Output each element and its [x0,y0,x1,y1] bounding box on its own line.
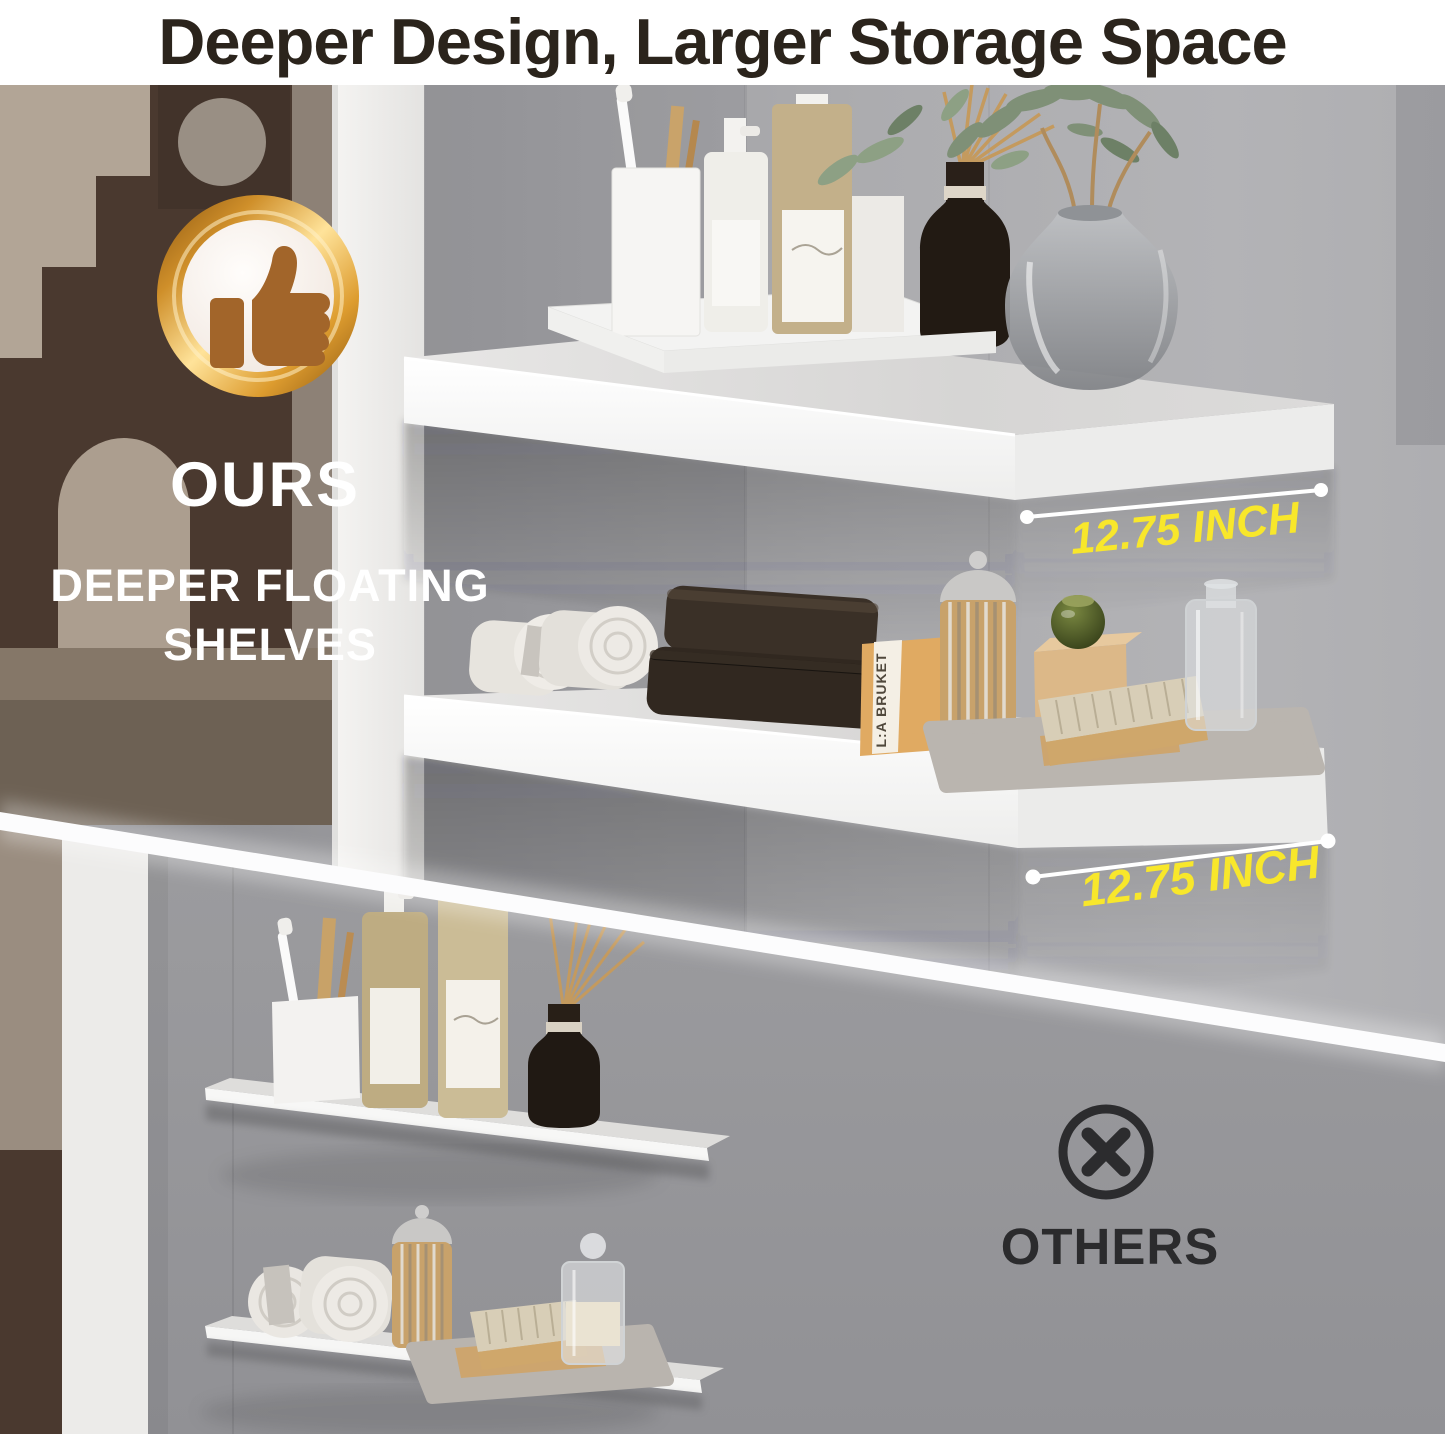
ours-subtitle-line2: SHELVES [25,621,515,668]
thumbs-up-badge [157,195,359,397]
page-title: Deeper Design, Larger Storage Space [0,0,1445,85]
product-comparison-image: L:A BRUKET [0,0,1445,1434]
swab-jar-small [392,1205,452,1348]
others-label: OTHERS [960,1220,1260,1274]
white-towel-rolls-small [248,1254,395,1342]
soap-box-brand-text: L:A BRUKET [873,652,889,747]
dark-folded-towels [646,584,892,730]
frame-edge [62,820,148,1434]
white-box [852,196,904,332]
photo-scene: L:A BRUKET [0,0,1445,1434]
amber-pump-bottle-small [362,882,428,1108]
ours-label: OURS [60,452,470,518]
ours-subtitle-line1: DEEPER FLOATING [25,562,515,609]
amber-bottle [772,94,852,334]
glass-bottle [1186,579,1256,730]
green-glass-jar [1051,595,1105,649]
